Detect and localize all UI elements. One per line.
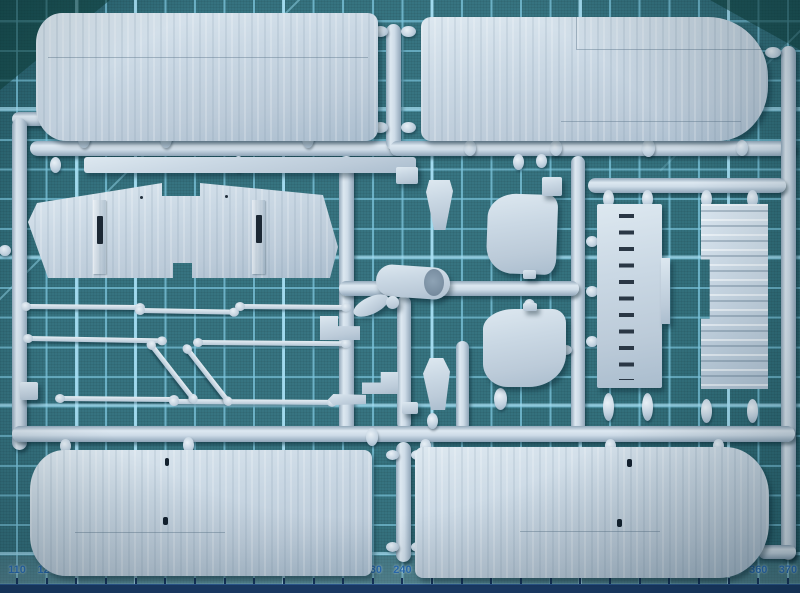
sprue-gate bbox=[386, 542, 399, 552]
locating-hole bbox=[140, 196, 143, 199]
strut-end-cap bbox=[341, 339, 351, 348]
part-slotted-floor-panel bbox=[597, 204, 662, 388]
rigging-hole bbox=[617, 519, 622, 527]
strut-end-cap bbox=[235, 302, 245, 311]
sprue-gate bbox=[50, 157, 61, 173]
sprue-gate bbox=[366, 428, 378, 446]
strut-end-cap bbox=[135, 306, 145, 315]
louvre-slots bbox=[619, 214, 634, 380]
sprue-runner bbox=[12, 118, 27, 450]
aileron-line bbox=[520, 531, 660, 532]
sprue-gate bbox=[736, 140, 748, 156]
wing-seam-line bbox=[48, 57, 368, 58]
sprue-runner bbox=[781, 46, 796, 560]
sprue-gate bbox=[401, 122, 416, 133]
sprue-gate bbox=[642, 139, 655, 157]
part-fuselage-deck-rear bbox=[483, 309, 566, 387]
wing-panel-line bbox=[576, 49, 761, 50]
strut-slot bbox=[97, 216, 103, 244]
strut-end-cap bbox=[193, 338, 203, 347]
photo-model-kit-sprue-on-cutting-mat: 45° 110120130140150160170180190200210220… bbox=[0, 0, 800, 593]
sprue-gate bbox=[0, 245, 11, 256]
rigging-hole bbox=[627, 459, 632, 467]
sprue-runner bbox=[456, 341, 469, 431]
part-small-block bbox=[542, 177, 562, 196]
sprue-gate bbox=[536, 154, 547, 168]
sprue-gate bbox=[513, 154, 524, 170]
mat-bottom-edge-strip bbox=[0, 584, 800, 593]
sprue-gate bbox=[701, 399, 712, 423]
rigging-hole bbox=[165, 458, 169, 466]
deck-tab bbox=[523, 270, 536, 279]
part-upper-wing-left bbox=[36, 13, 378, 141]
cowling-opening bbox=[424, 269, 444, 296]
ruler-number: 360 bbox=[749, 564, 767, 576]
sprue-gate bbox=[401, 26, 416, 37]
part-small-block bbox=[396, 167, 418, 184]
ruler-number: 240 bbox=[393, 564, 411, 576]
part-propeller-spinner bbox=[386, 296, 399, 309]
part-tail-skid bbox=[328, 394, 366, 405]
strut-slot bbox=[256, 215, 262, 243]
sprue-gate bbox=[642, 393, 653, 421]
panel-tab bbox=[661, 258, 670, 324]
strut-end-cap bbox=[21, 302, 31, 311]
part-small-plate bbox=[20, 382, 38, 400]
sprue-gate bbox=[603, 393, 614, 421]
sprue-gate bbox=[494, 388, 507, 410]
sprue-gate bbox=[464, 140, 476, 156]
sprue-gate bbox=[747, 399, 758, 423]
sprue-gate bbox=[427, 413, 438, 429]
part-small-block bbox=[402, 402, 418, 414]
part-fuselage-deck-front bbox=[486, 193, 559, 275]
part-interplane-strut bbox=[238, 304, 348, 310]
sprue-gate bbox=[386, 450, 399, 460]
sprue-runner bbox=[571, 156, 585, 438]
ruler-number: 370 bbox=[779, 564, 797, 576]
strut-end-cap bbox=[341, 303, 351, 312]
sprue-runner bbox=[588, 178, 786, 193]
sprue-runner bbox=[386, 24, 401, 150]
ruler-number: 110 bbox=[8, 564, 26, 576]
part-interplane-strut bbox=[58, 396, 176, 402]
strut-end-cap bbox=[157, 336, 167, 345]
strut-end-cap bbox=[169, 397, 179, 406]
sprue-gate bbox=[550, 140, 562, 156]
part-interplane-strut bbox=[24, 304, 142, 310]
deck-tab bbox=[523, 303, 537, 311]
part-lower-wing-left bbox=[30, 450, 372, 576]
part-upper-wing-right bbox=[421, 17, 768, 141]
rigging-hole bbox=[163, 517, 168, 525]
wing-panel-line bbox=[576, 17, 577, 49]
aileron-line bbox=[75, 532, 225, 533]
locating-hole bbox=[225, 195, 228, 198]
sprue-gate bbox=[765, 47, 781, 58]
aileron-line bbox=[561, 121, 741, 122]
strut-end-cap bbox=[23, 334, 33, 343]
sprue-runner bbox=[12, 426, 795, 442]
part-lower-wing-right bbox=[415, 447, 769, 578]
part-corrugated-panel bbox=[701, 204, 768, 389]
part-walkway-strip bbox=[84, 157, 416, 173]
strut-end-cap bbox=[55, 394, 65, 403]
